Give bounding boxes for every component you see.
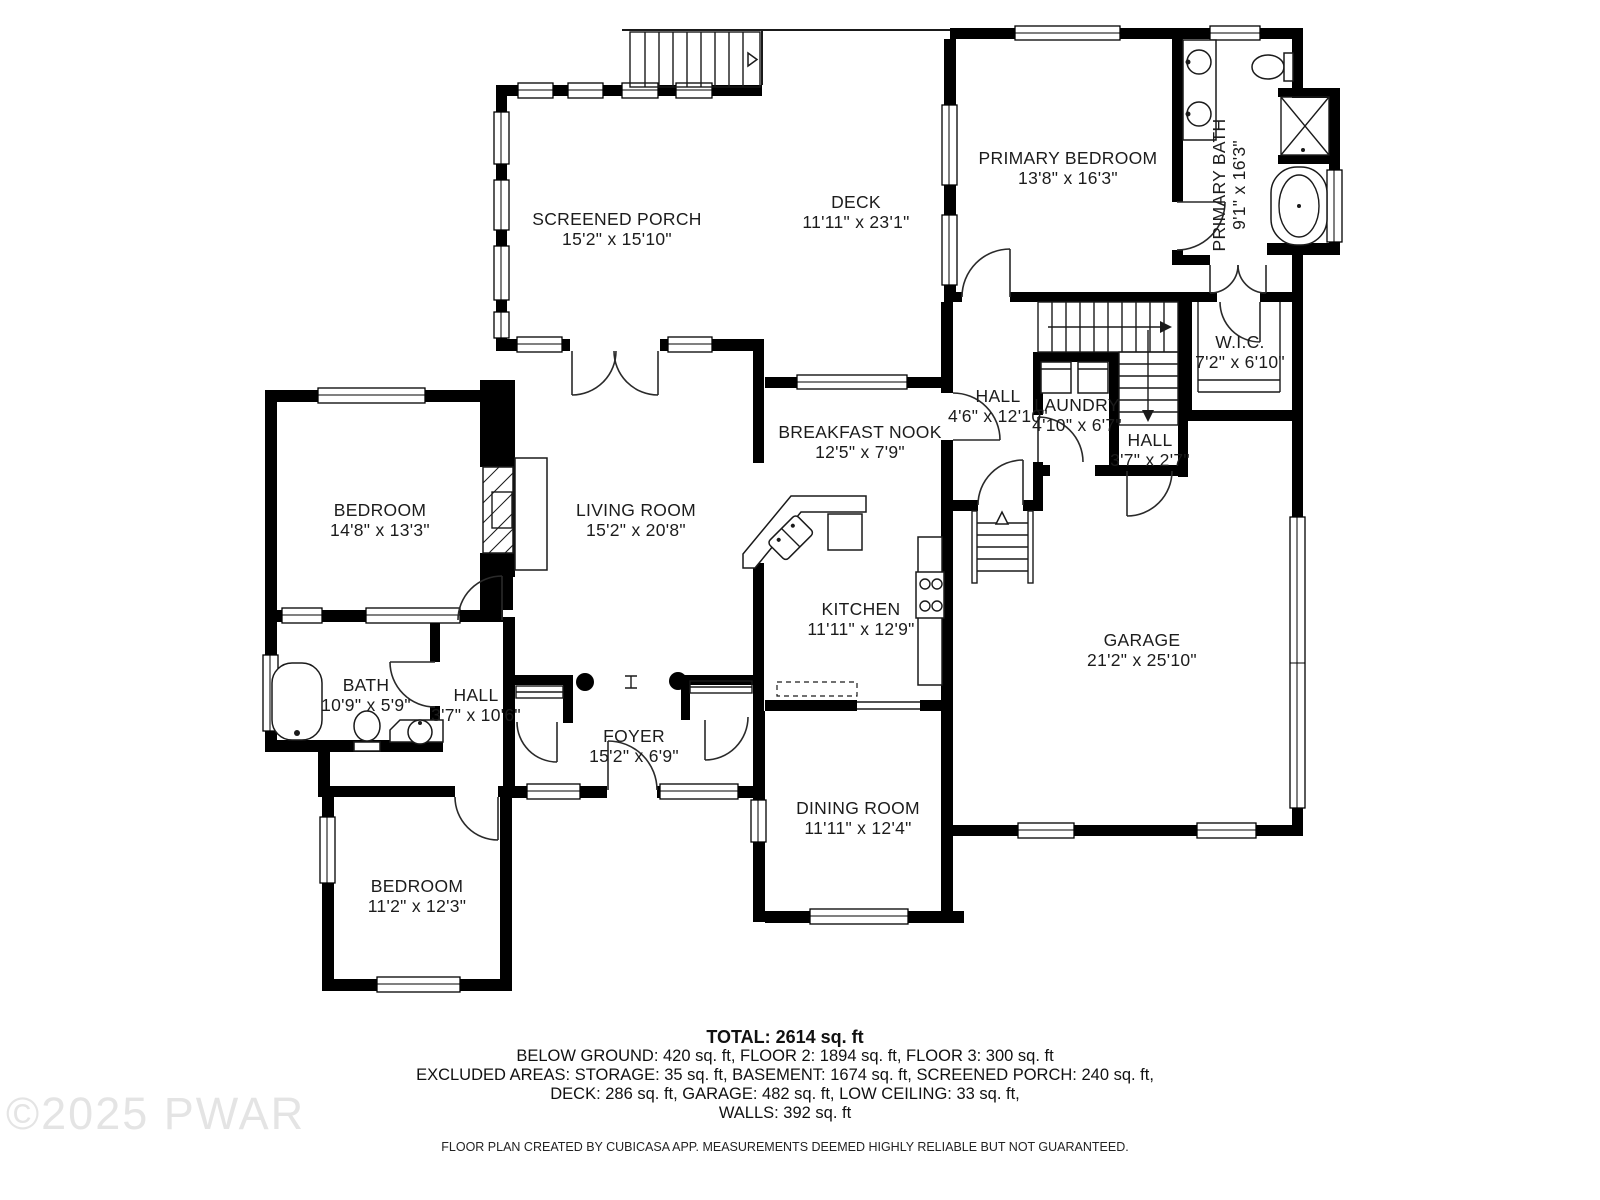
room-label-wic: W.I.C. 7'2" x 6'10" [1195, 332, 1285, 372]
foyer-closet-right-door [705, 717, 748, 760]
cased-opening [857, 702, 920, 709]
kitchen-island [828, 514, 862, 550]
garage-entry-door [1127, 471, 1172, 516]
area-summary: TOTAL: 2614 sq. ft BELOW GROUND: 420 sq.… [416, 1028, 1154, 1157]
floors-area-line: BELOW GROUND: 420 sq. ft, FLOOR 2: 1894 … [416, 1047, 1154, 1066]
basement-stairs-arrow [996, 512, 1008, 524]
bedroom-lower-door [455, 797, 498, 840]
toilet [354, 711, 380, 741]
disclaimer: FLOOR PLAN CREATED BY CUBICASA APP. MEAS… [416, 1138, 1154, 1157]
primary-bath-fixtures [1183, 40, 1329, 245]
room-label-deck: DECK 11'11" x 23'1" [802, 192, 909, 232]
stove [916, 572, 944, 618]
room-label-kitchen: KITCHEN 11'11" x 12'9" [807, 599, 914, 639]
porch-double-door-right [614, 351, 658, 395]
column [576, 673, 594, 691]
excluded-area-line-2: DECK: 286 sq. ft, GARAGE: 482 sq. ft, LO… [416, 1085, 1154, 1104]
room-label-laundry: LAUNDRY 4'10" x 6'7" [1032, 395, 1122, 435]
vestibule-double-door-right [1238, 265, 1266, 293]
stairs-down-arrow [1142, 410, 1154, 422]
basement-stairs-rail [972, 511, 977, 583]
room-label-primary-bath: PRIMARY BATH 9'1" x 16'3" [1209, 119, 1249, 252]
room-label-bath: BATH 10'9" x 5'9" [321, 675, 411, 715]
dryer [1078, 362, 1108, 393]
hall-kitchen-door [978, 460, 1023, 505]
sink [1187, 102, 1211, 126]
column [669, 672, 687, 690]
sink [1187, 50, 1211, 74]
room-label-garage: GARAGE 21'2" x 25'10" [1087, 630, 1197, 670]
room-label-breakfast-nook: BREAKFAST NOOK 12'5" x 7'9" [778, 422, 941, 462]
room-label-dining-room: DINING ROOM 11'11" x 12'4" [796, 798, 920, 838]
excluded-area-line-1: EXCLUDED AREAS: STORAGE: 35 sq. ft, BASE… [416, 1066, 1154, 1085]
beam-symbol [625, 676, 637, 688]
room-label-hall-small: HALL 3'7" x 2'7" [1110, 430, 1190, 470]
room-label-foyer: FOYER 15'2" x 6'9" [589, 726, 679, 766]
floor-plan-page: SCREENED PORCH 15'2" x 15'10" DECK 11'11… [0, 0, 1600, 1200]
total-area: TOTAL: 2614 sq. ft [416, 1028, 1154, 1047]
primary-bedroom-door [962, 249, 1010, 297]
vestibule-double-door-left [1210, 265, 1238, 293]
watermark: ©2025 PWAR [6, 1088, 305, 1140]
floor-plan-drawing [0, 0, 1600, 1200]
room-label-bedroom-left: BEDROOM 14'8" x 13'3" [330, 500, 430, 540]
room-label-hall-lower: HALL 3'7" x 10'6" [431, 685, 521, 725]
room-label-primary-bedroom: PRIMARY BEDROOM 13'8" x 16'3" [979, 148, 1158, 188]
deck-stairs-arrow [748, 53, 757, 66]
kitchen-fixtures [743, 496, 944, 696]
stairs-up-arrow [1160, 321, 1172, 333]
room-label-screened-porch: SCREENED PORCH 15'2" x 15'10" [532, 209, 702, 249]
toilet-tank [1284, 53, 1293, 81]
deck-stairs [630, 32, 760, 87]
fireplace [483, 458, 547, 570]
stairs [622, 30, 1178, 583]
hearth [515, 458, 547, 570]
room-label-bedroom-lower: BEDROOM 11'2" x 12'3" [368, 876, 467, 916]
foyer-closet-left-door [517, 722, 557, 762]
laundry-fixtures [1041, 362, 1108, 393]
toilet [1252, 55, 1284, 79]
upper-cabinets [777, 682, 857, 696]
room-label-living-room: LIVING ROOM 15'2" x 20'8" [576, 500, 696, 540]
walls-area-line: WALLS: 392 sq. ft [416, 1104, 1154, 1123]
toilet-tank [354, 742, 380, 751]
porch-double-door-left [572, 351, 616, 395]
tub [272, 663, 322, 740]
basement-stairs-rail [1028, 511, 1033, 583]
